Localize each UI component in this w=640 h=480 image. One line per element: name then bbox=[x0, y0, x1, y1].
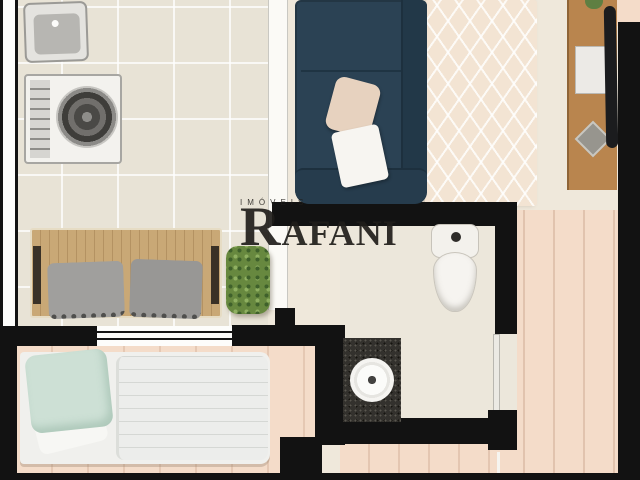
bed-duvet bbox=[116, 356, 268, 460]
left-window bbox=[3, 0, 15, 332]
divider-wall-stub bbox=[275, 308, 295, 326]
left-interior-wall-line bbox=[15, 0, 18, 332]
hallway-lower-floor bbox=[340, 442, 500, 473]
bench-pillow-right bbox=[129, 259, 203, 319]
toilet-flush-button bbox=[451, 232, 461, 242]
entry-door-frame-line bbox=[497, 452, 500, 473]
watermark-brand-text: RAFANI bbox=[240, 204, 398, 256]
utility-sink bbox=[23, 1, 89, 63]
bench-post-right bbox=[211, 246, 219, 304]
floorplan-image: RAFANI IMÓVEIS bbox=[0, 0, 640, 480]
bedroom-right-wall bbox=[315, 328, 345, 445]
bedroom-top-wall-left bbox=[0, 326, 97, 346]
left-wall-lower bbox=[0, 330, 17, 480]
bed-pillow-mint bbox=[24, 348, 114, 434]
washing-machine bbox=[24, 74, 122, 164]
vanity-sink-bowl bbox=[350, 358, 394, 402]
bench-post-left bbox=[33, 246, 41, 304]
bathroom-right-wall bbox=[495, 210, 517, 334]
bottom-edge-wall bbox=[0, 473, 640, 480]
watermark: RAFANI IMÓVEIS bbox=[240, 204, 420, 268]
sofa-cushion-seam bbox=[301, 70, 401, 72]
bathroom-door-leaf bbox=[493, 334, 500, 412]
bedroom-window bbox=[97, 326, 232, 346]
diamond-pattern-rug bbox=[425, 0, 537, 206]
watermark-tagline-text: IMÓVEIS bbox=[240, 198, 318, 207]
bench-pillow-left bbox=[47, 261, 125, 320]
utility-sink-basin bbox=[33, 13, 80, 55]
washer-control-panel bbox=[30, 80, 50, 158]
console-speaker-box bbox=[575, 46, 607, 94]
television bbox=[604, 6, 618, 148]
right-exterior-wall bbox=[618, 22, 640, 480]
bathroom-wall-end-block bbox=[488, 410, 517, 450]
washer-drum bbox=[56, 86, 118, 148]
